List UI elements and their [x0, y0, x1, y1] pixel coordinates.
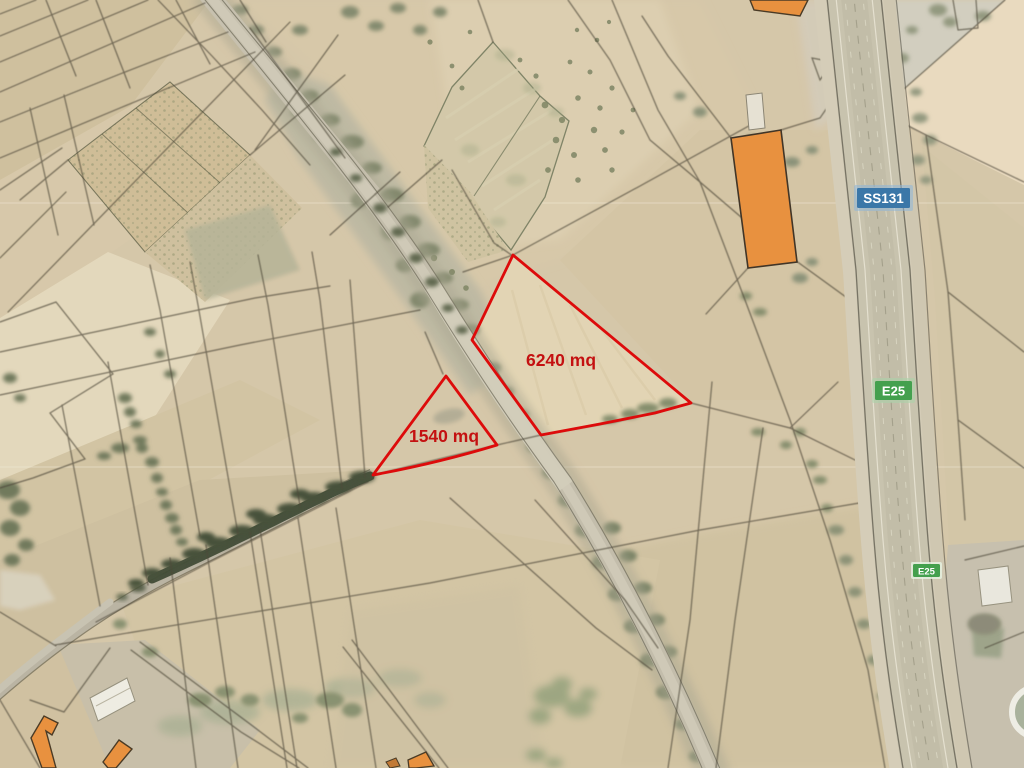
svg-text:E25: E25: [882, 384, 905, 399]
svg-text:6240 mq: 6240 mq: [526, 350, 596, 370]
svg-text:E25: E25: [918, 567, 936, 578]
svg-text:SS131: SS131: [863, 191, 904, 206]
svg-text:1540 mq: 1540 mq: [409, 426, 479, 446]
